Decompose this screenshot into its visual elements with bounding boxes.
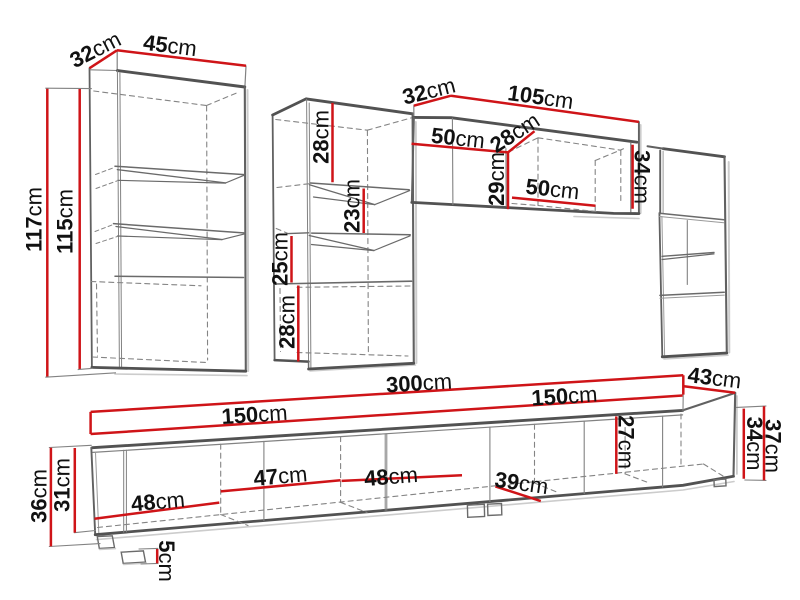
svg-text:25cm: 25cm — [268, 232, 293, 286]
svg-text:300cm: 300cm — [385, 368, 452, 397]
svg-text:150cm: 150cm — [221, 400, 289, 429]
svg-text:37cm: 37cm — [761, 419, 786, 473]
svg-text:34cm: 34cm — [630, 150, 655, 204]
svg-text:117cm: 117cm — [22, 187, 47, 252]
svg-text:36cm: 36cm — [27, 469, 52, 523]
svg-text:150cm: 150cm — [531, 381, 599, 410]
svg-text:23cm: 23cm — [340, 179, 365, 233]
svg-text:28cm: 28cm — [309, 110, 334, 164]
svg-text:115cm: 115cm — [53, 189, 78, 254]
svg-text:27cm: 27cm — [614, 415, 639, 469]
svg-text:5cm: 5cm — [154, 540, 179, 582]
svg-text:47cm: 47cm — [253, 461, 309, 491]
svg-text:48cm: 48cm — [130, 487, 186, 517]
svg-text:31cm: 31cm — [50, 458, 75, 512]
svg-text:29cm: 29cm — [484, 152, 509, 206]
svg-text:48cm: 48cm — [363, 462, 419, 491]
svg-text:28cm: 28cm — [275, 295, 300, 349]
